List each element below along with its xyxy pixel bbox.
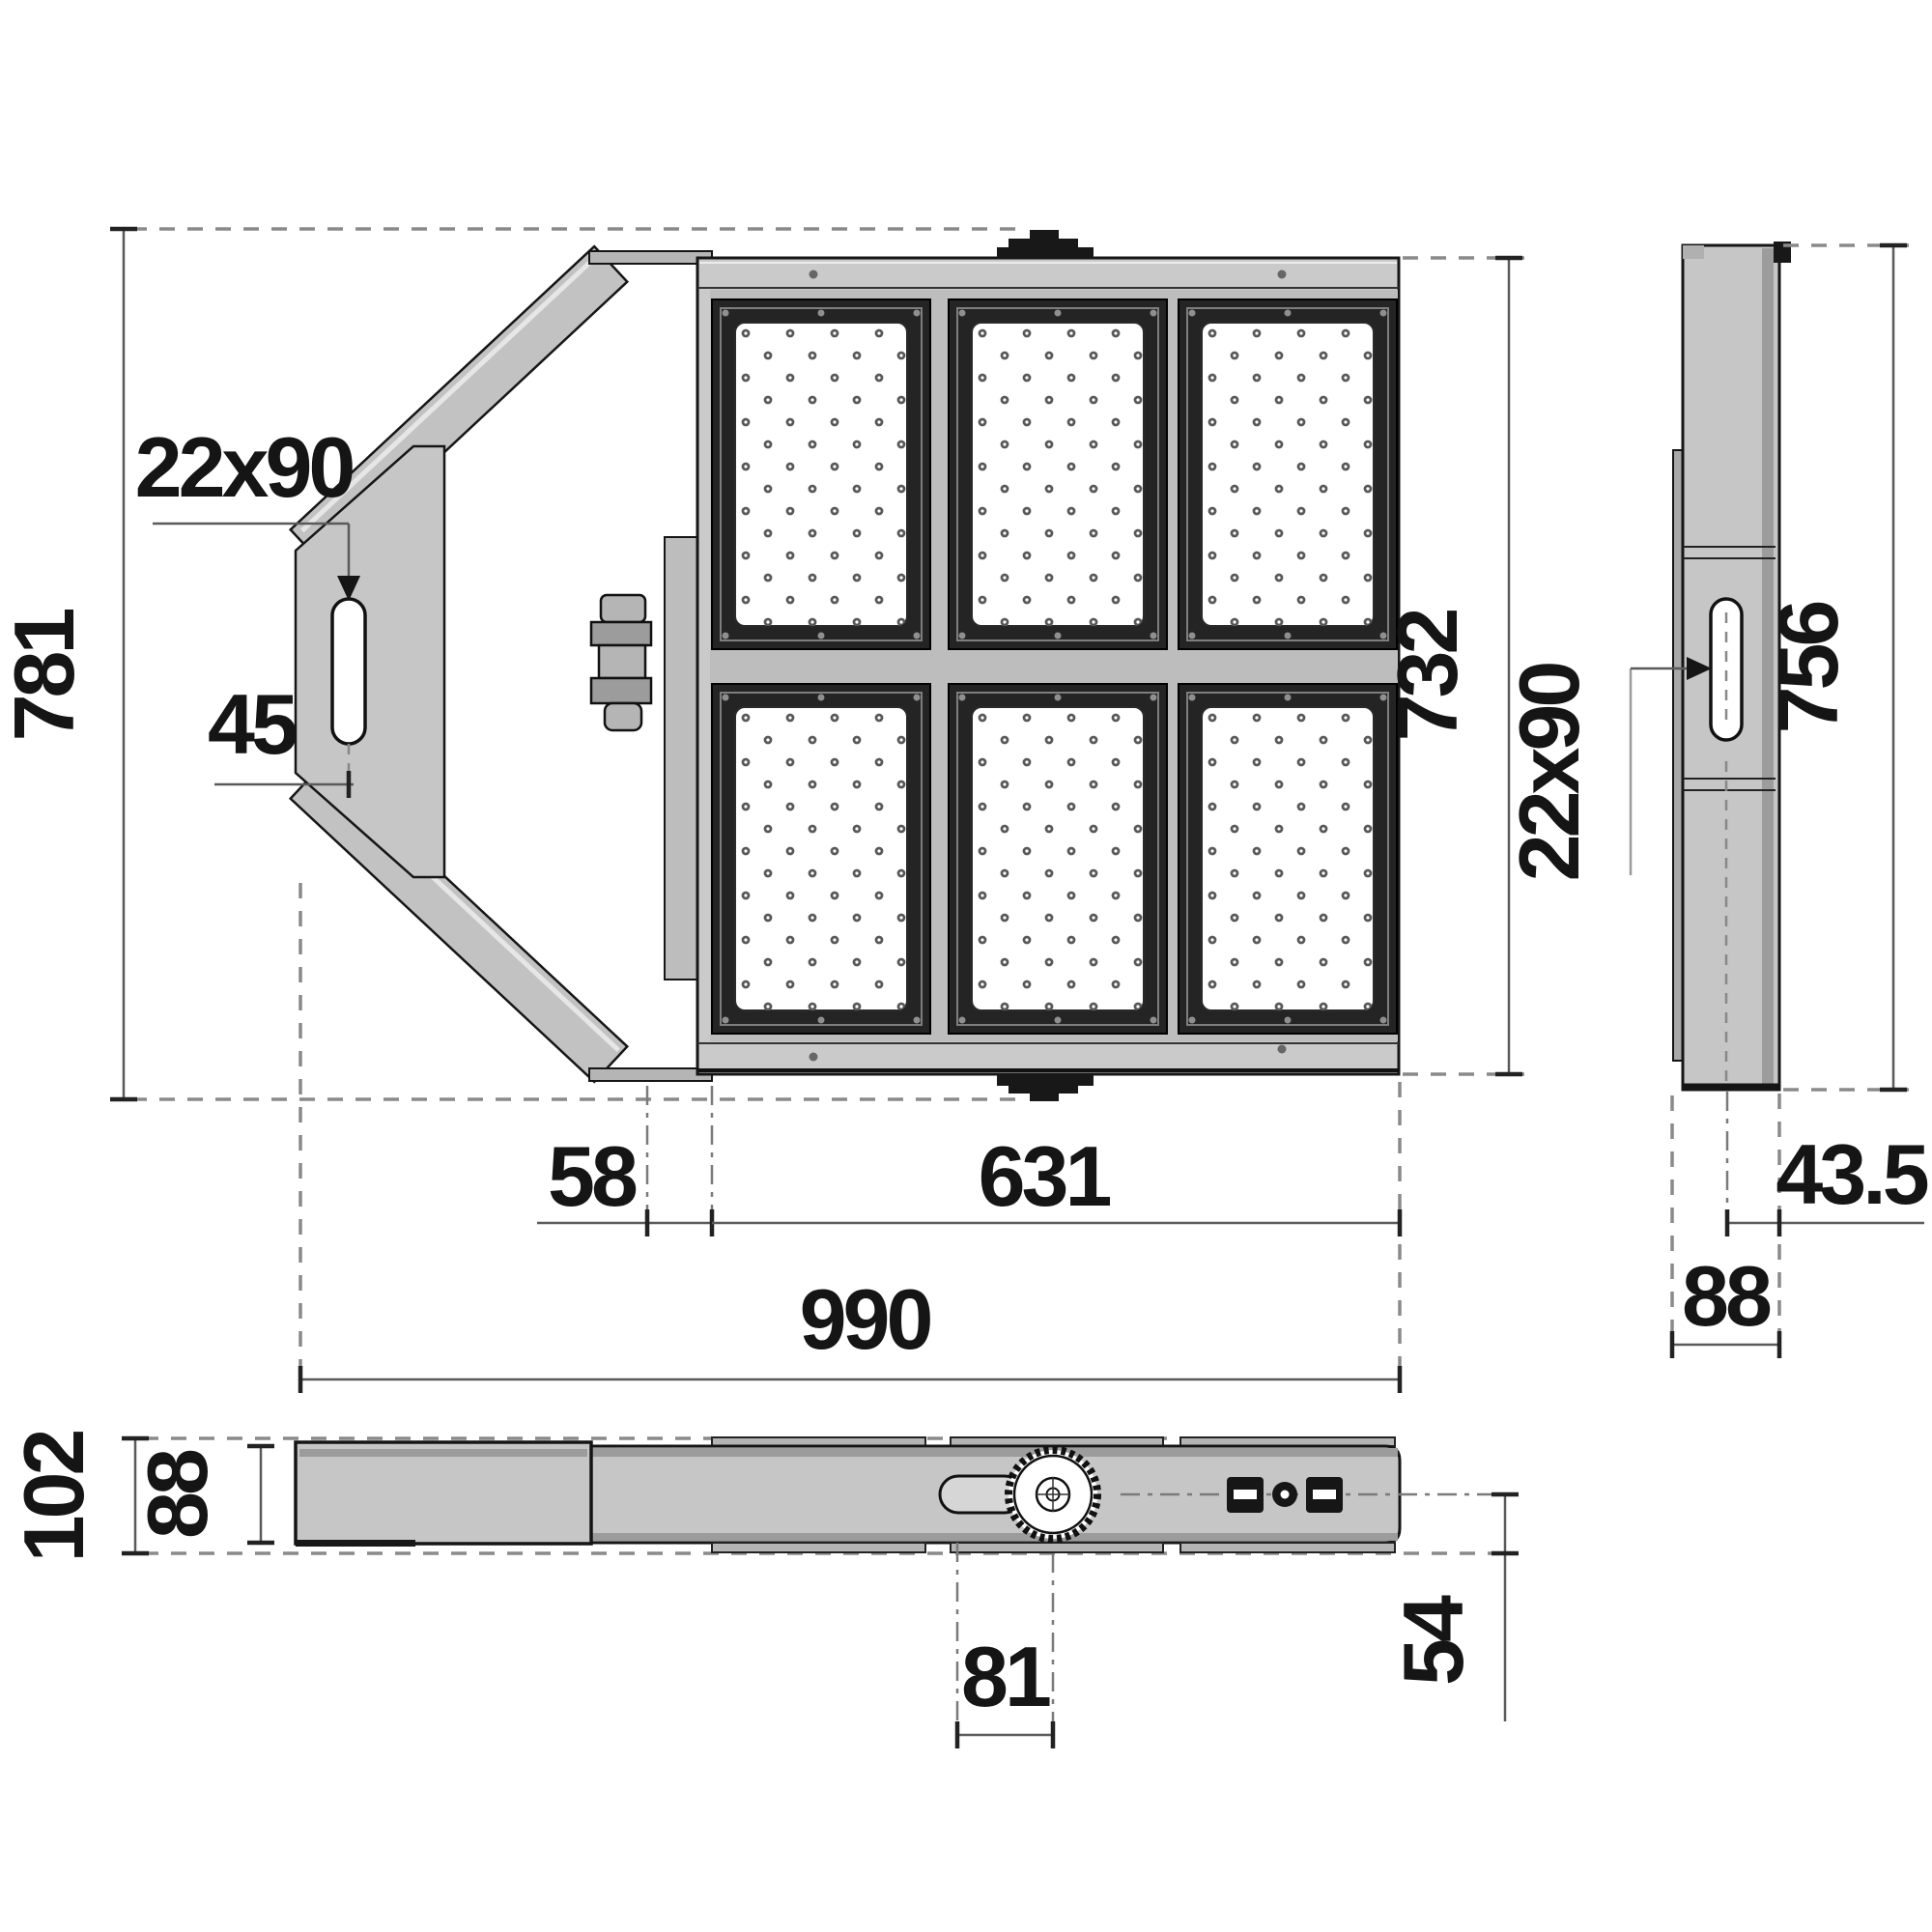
dim-label-756: 756: [1760, 603, 1856, 734]
bottom-view: 102 88 81 54: [6, 1432, 1519, 1748]
dim-housing-height-side: 756: [1760, 245, 1909, 1090]
bracket-tab-top: [589, 251, 712, 264]
led-module: [949, 684, 1167, 1034]
dim-label-732: 732: [1379, 611, 1475, 742]
led-module: [712, 299, 930, 649]
technical-drawing: 781 22x90 45 732 58: [0, 0, 1932, 1932]
front-view: 781 22x90 45 732 58: [0, 229, 1524, 1393]
bracket-tab-bottom: [589, 1068, 712, 1081]
bracket-arm-section: [296, 1442, 591, 1544]
dim-label-81: 81: [961, 1629, 1050, 1724]
dim-label-22x90-side: 22x90: [1501, 664, 1597, 882]
led-module: [1179, 684, 1397, 1034]
screw-icon: [1278, 270, 1287, 279]
led-module: [712, 684, 930, 1034]
dim-module-width: 631: [712, 1082, 1400, 1236]
dim-label-102: 102: [6, 1432, 101, 1563]
dim-label-22x90-front: 22x90: [135, 419, 354, 515]
dim-label-54: 54: [1385, 1595, 1481, 1686]
mounting-clamp-bottom: [997, 1074, 1094, 1101]
dim-overall-depth: 102: [6, 1432, 149, 1563]
screw-icon: [1278, 1045, 1287, 1054]
dim-left-inset: 58: [537, 1086, 712, 1236]
screw-icon: [810, 270, 818, 279]
dim-label-88-bottom: 88: [129, 1450, 225, 1539]
dim-label-45: 45: [208, 676, 297, 772]
drawing-page: 781 22x90 45 732 58: [0, 0, 1932, 1932]
led-module: [1179, 299, 1397, 649]
dim-center-to-face: 43.5: [1727, 1092, 1928, 1236]
screw-icon: [810, 1053, 818, 1062]
dim-label-631: 631: [979, 1128, 1111, 1224]
dim-label-781: 781: [0, 610, 92, 742]
led-module: [949, 299, 1167, 649]
dim-label-58: 58: [548, 1128, 637, 1224]
cable-gland: [591, 595, 651, 730]
dim-pivot-offset: 81: [957, 1543, 1053, 1748]
dim-label-990: 990: [800, 1271, 931, 1367]
bracket-slot-hole: [332, 599, 365, 744]
side-view: 22x90 756 43.5 88: [1501, 241, 1928, 1358]
mounting-clamp-top: [997, 230, 1094, 259]
dim-center-to-underside: 54: [1385, 1494, 1519, 1721]
dim-label-88-side: 88: [1682, 1248, 1771, 1344]
dim-label-43.5: 43.5: [1776, 1126, 1927, 1222]
dim-housing-depth-bottom: 88: [129, 1446, 274, 1543]
